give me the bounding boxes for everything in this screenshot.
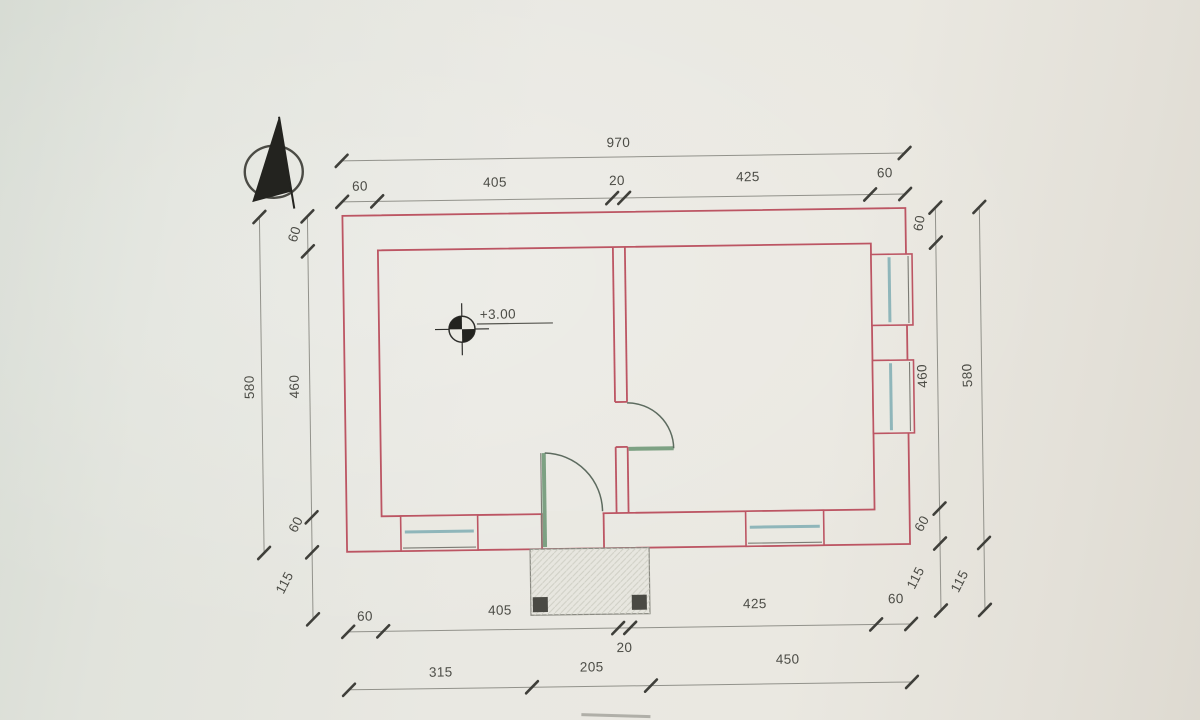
dim-left-overall: 580: [239, 211, 270, 559]
porch: [530, 548, 650, 616]
dim-label: 205: [580, 659, 604, 674]
dim-label: 970: [606, 135, 630, 150]
dim-label: 60: [888, 591, 904, 606]
window-glass: [405, 531, 474, 532]
window-bottom-right: [746, 510, 824, 546]
window-glass: [891, 363, 892, 430]
dim-right-overall: 580 115: [942, 201, 991, 617]
window-right-lower: [872, 360, 914, 434]
porch-column: [632, 595, 647, 610]
dim-label: 60: [911, 513, 932, 534]
window-bottom-left: [401, 515, 478, 551]
porch-column: [533, 597, 548, 612]
north-arrow-icon: [244, 116, 303, 209]
window-right-upper: [871, 254, 913, 326]
window-glass: [889, 257, 890, 322]
dim-label: 425: [743, 596, 767, 611]
entrance-door: [541, 452, 604, 551]
dim-label: 580: [959, 363, 975, 387]
dim-label: 115: [948, 568, 972, 595]
interior-door: [627, 402, 674, 449]
dim-label: 405: [483, 175, 507, 190]
dim-label: 60: [357, 608, 373, 623]
dim-bottom-overall: 315 205 450: [343, 650, 918, 696]
dim-label: 20: [609, 173, 625, 188]
scanned-floor-plan-photo: +3.00 970 60 405 20 425 60 580: [0, 0, 1200, 720]
door-leaf: [629, 448, 674, 449]
dim-label: 60: [352, 178, 368, 193]
dim-label: 115: [904, 564, 928, 591]
dim-label: 460: [287, 375, 302, 399]
dim-label: 60: [285, 224, 304, 244]
window-glass: [750, 526, 820, 527]
door-swing-arc: [627, 402, 674, 449]
dim-label: 315: [429, 664, 453, 679]
floor-plan-drawing: +3.00 970 60 405 20 425 60 580: [0, 0, 1200, 720]
level-marker-label: +3.00: [480, 306, 516, 322]
door-leaf: [544, 453, 545, 547]
dim-label: 60: [877, 165, 893, 180]
partition-wall: [613, 247, 629, 513]
dim-label: 60: [910, 214, 927, 232]
dim-label: 425: [736, 169, 760, 184]
dim-left-segments: 60 460 60 115: [267, 210, 319, 626]
dim-label: 405: [488, 603, 512, 618]
cut-off-mark: [581, 714, 650, 718]
dim-top-segments: 60 405 20 425 60: [336, 165, 911, 208]
dim-label: 450: [776, 652, 800, 667]
door-swing-arc: [545, 452, 603, 512]
dim-label: 460: [914, 364, 930, 388]
dim-label: 580: [242, 375, 257, 399]
dim-label: 60: [285, 514, 306, 535]
dim-label: 115: [273, 569, 297, 596]
dim-label: 20: [616, 640, 632, 655]
dim-top-overall: 970: [335, 131, 910, 167]
